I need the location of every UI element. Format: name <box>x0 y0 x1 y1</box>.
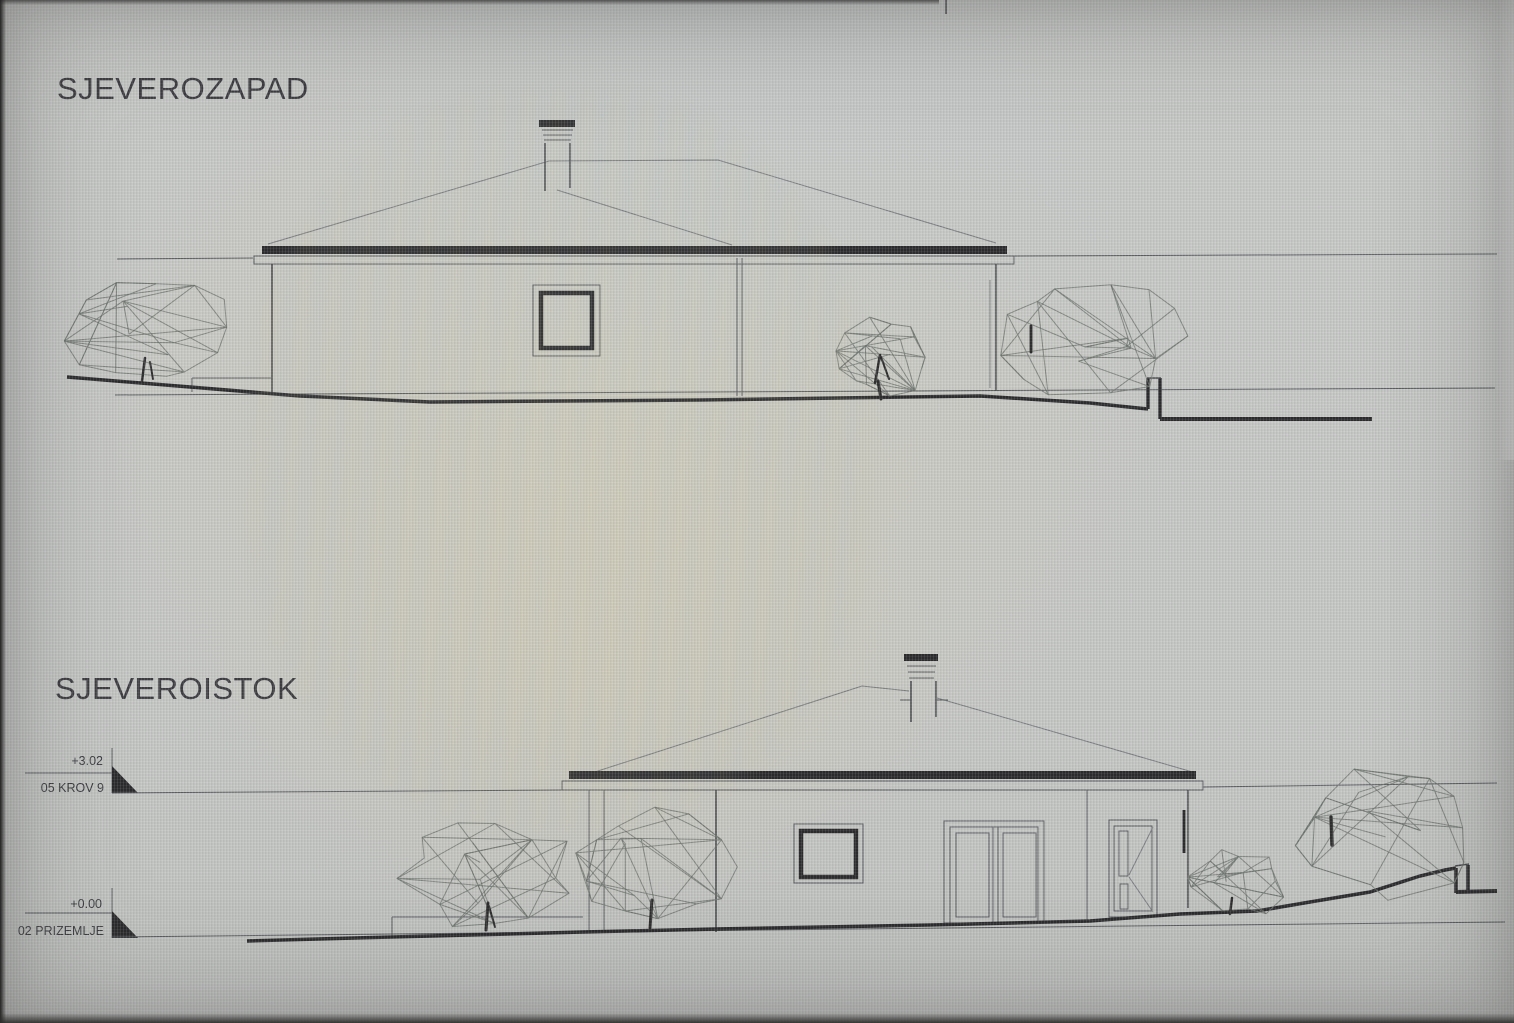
photographed-screen: SJEVEROZAPAD <box>0 0 1514 1023</box>
wireframe-trees-layer <box>64 283 1464 930</box>
elevation-drawings-canvas: SJEVEROZAPAD <box>0 0 1514 1023</box>
hip-roof-top <box>268 160 996 245</box>
chimney-top <box>539 120 575 191</box>
window-bottom <box>794 824 863 883</box>
wireframe-tree <box>1295 769 1464 900</box>
northeast-elevation-drawing: SJEVEROISTOK +3.02 05 KROV 9 +0.00 02 PR… <box>18 654 1505 941</box>
hip-roof-bottom <box>573 686 1196 779</box>
eave-band-bottom <box>562 771 1203 790</box>
entry-door <box>1109 820 1157 917</box>
terrain-line-top <box>67 377 1372 419</box>
reference-lines-top <box>115 254 1497 395</box>
elevation-value-roof: +3.02 <box>71 754 103 768</box>
wireframe-tree <box>397 823 569 930</box>
northeast-elevation-title: SJEVEROISTOK <box>55 671 298 706</box>
tree-trunk <box>650 900 652 928</box>
elevation-marker-roof: +3.02 05 KROV 9 <box>25 748 138 795</box>
elevation-label-ground: 02 PRIZEMLJE <box>18 924 104 938</box>
wireframe-tree <box>836 317 925 399</box>
elevation-marker-triangle <box>112 911 138 938</box>
window-top <box>533 285 600 356</box>
elevation-value-ground: +0.00 <box>70 897 102 911</box>
eave-band-top <box>254 246 1014 264</box>
wireframe-tree <box>1188 850 1284 914</box>
chimney-bottom <box>900 654 948 722</box>
double-door <box>944 821 1044 923</box>
elevation-marker-triangle <box>112 766 138 793</box>
elevation-marker-ground: +0.00 02 PRIZEMLJE <box>18 888 138 938</box>
tree-trunk <box>486 903 488 930</box>
tree-trunk <box>1331 817 1332 845</box>
wireframe-tree <box>576 807 738 928</box>
terrain-line-bottom <box>247 864 1497 941</box>
northwest-elevation-drawing: SJEVEROZAPAD <box>57 71 1497 419</box>
reference-lines-bottom <box>112 783 1505 937</box>
tree-trunk <box>150 362 153 379</box>
elevation-label-roof: 05 KROV 9 <box>41 781 104 795</box>
northwest-elevation-title: SJEVEROZAPAD <box>57 71 309 106</box>
wireframe-tree <box>64 283 226 381</box>
